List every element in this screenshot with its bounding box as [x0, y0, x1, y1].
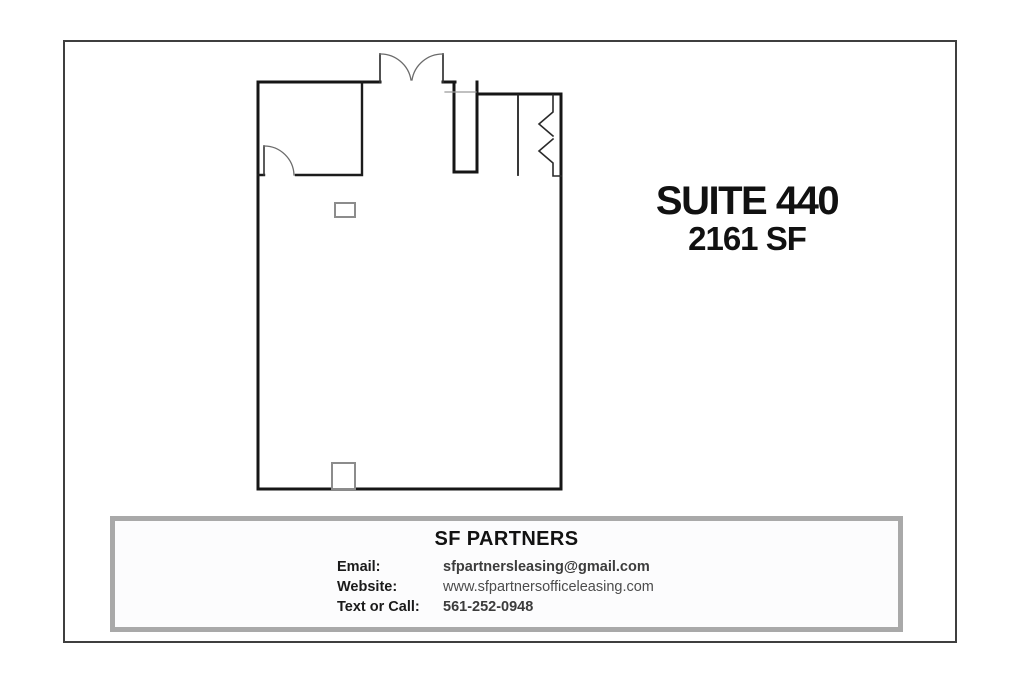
suite-area-label: 2161 SF	[600, 221, 894, 257]
suite-number-label: SUITE 440	[600, 181, 894, 221]
company-name: SF PARTNERS	[115, 528, 898, 551]
suite-title-block: SUITE 440 2161 SF	[600, 181, 894, 257]
contact-label-website: Website:	[337, 577, 443, 597]
contact-label-phone: Text or Call:	[337, 597, 443, 617]
column-rect-upper	[335, 203, 355, 217]
contact-value-phone[interactable]: 561-252-0948	[443, 597, 654, 617]
contact-value-email[interactable]: sfpartnersleasing@gmail.com	[443, 557, 654, 577]
office-room-walls	[258, 82, 362, 175]
contact-rows: Email: sfpartnersleasing@gmail.com Websi…	[337, 557, 654, 617]
contact-value-website[interactable]: www.sfpartnersofficeleasing.com	[443, 577, 654, 597]
flyer-canvas: SUITE 440 2161 SF SF PARTNERS Email: sfp…	[0, 0, 1024, 683]
contact-label-email: Email:	[337, 557, 443, 577]
office-door-swing-arc	[264, 146, 294, 175]
suite-outer-walls	[258, 82, 561, 489]
entry-double-door-arcs	[380, 54, 443, 80]
column-rect-bottom	[332, 463, 355, 489]
shaft-walls	[454, 82, 477, 172]
entry-double-door-leaves	[380, 54, 443, 82]
contact-card: SF PARTNERS Email: sfpartnersleasing@gma…	[110, 516, 903, 632]
bifold-door-zigzag	[539, 95, 561, 176]
